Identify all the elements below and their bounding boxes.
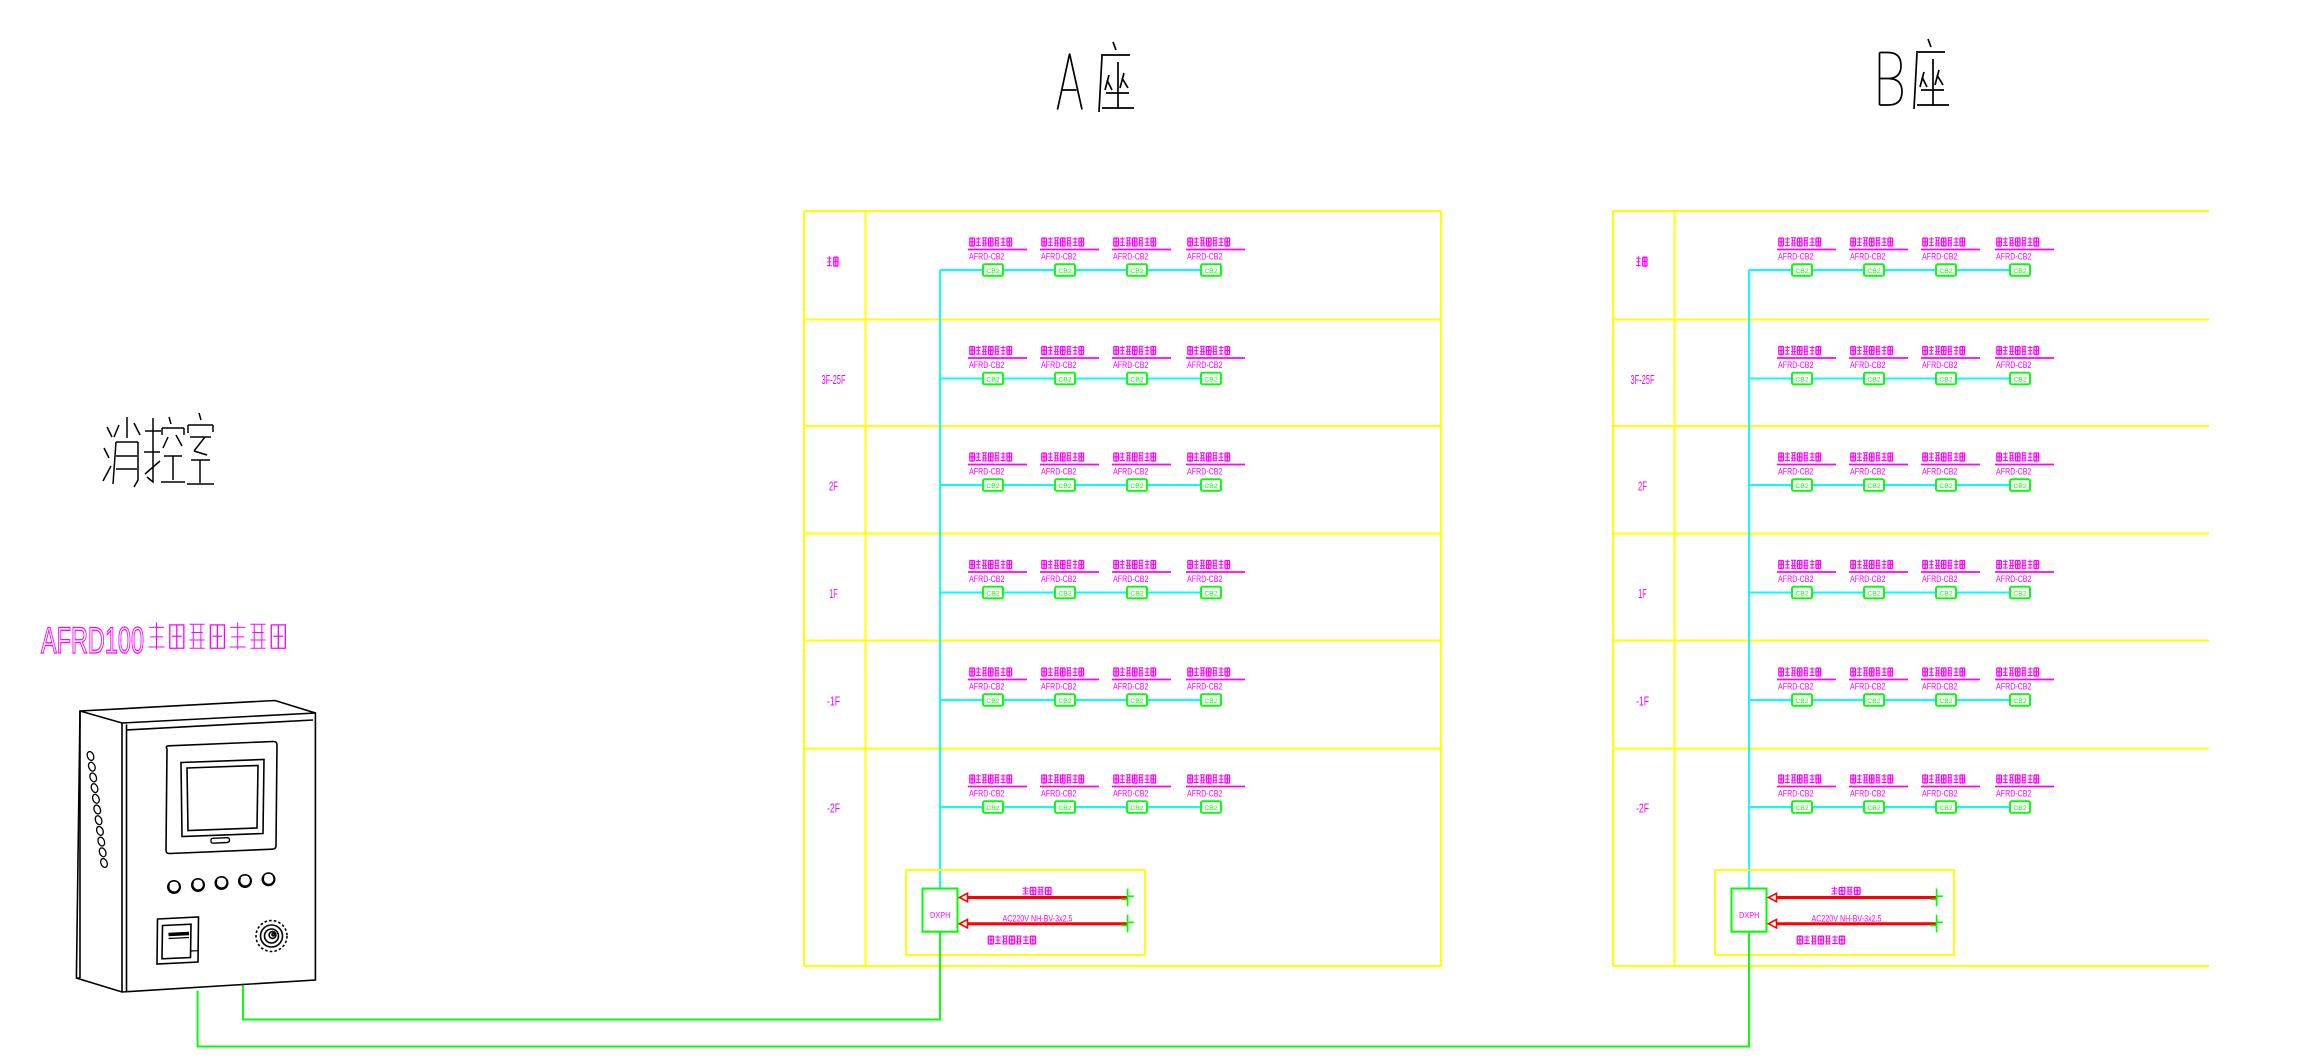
svg-text:-1F: -1F [827, 695, 840, 709]
svg-text:2F: 2F [829, 480, 838, 494]
svg-text:1F: 1F [829, 587, 838, 601]
svg-text:-2F: -2F [827, 802, 840, 816]
svg-text:AFRD100: AFRD100 [41, 620, 144, 661]
svg-text:3F-25F: 3F-25F [1631, 373, 1655, 387]
svg-text:3F-25F: 3F-25F [822, 373, 846, 387]
svg-text:-1F: -1F [1636, 695, 1649, 709]
svg-text:-2F: -2F [1636, 802, 1649, 816]
svg-text:2F: 2F [1638, 480, 1647, 494]
svg-text:1F: 1F [1638, 587, 1647, 601]
